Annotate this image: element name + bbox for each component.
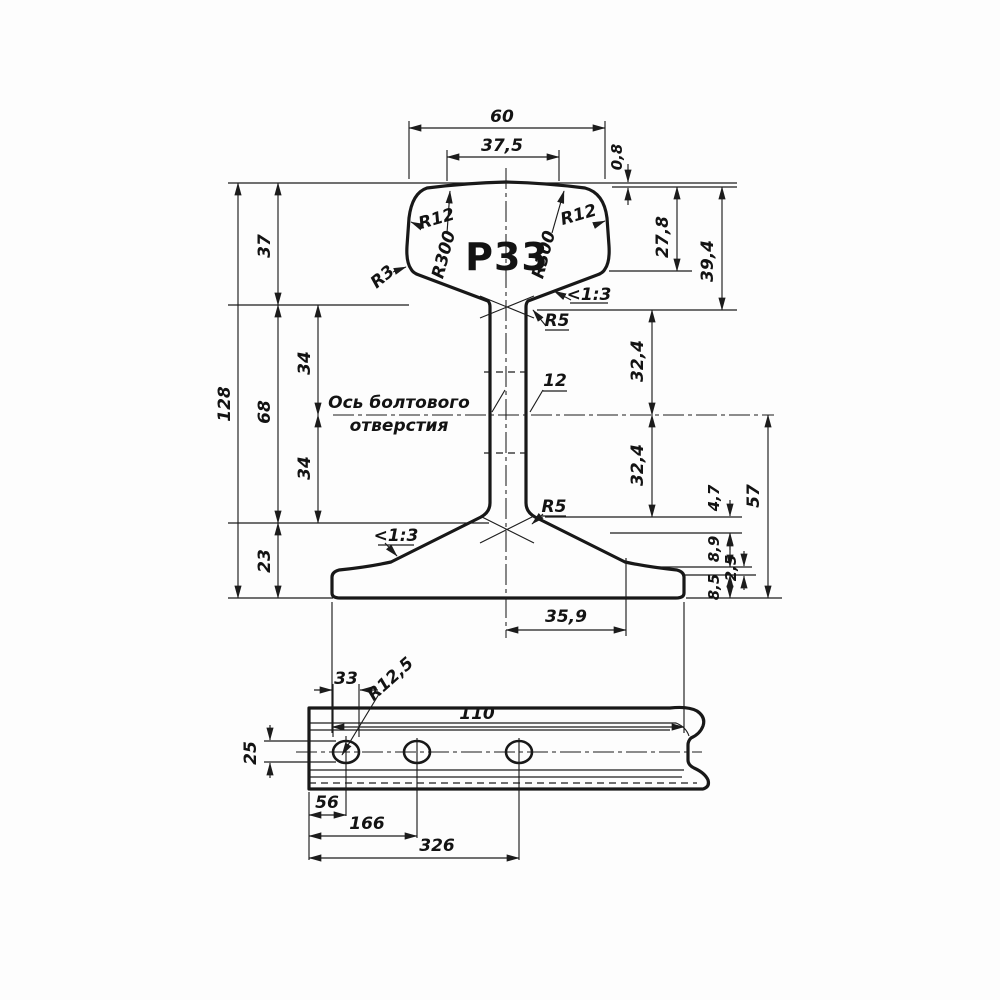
dim-top-width: 60 [490,107,514,127]
dim-head-zone: 37 [255,234,275,258]
dim-third-hole-offset: 326 [419,836,455,856]
dim-crown-drop: 0,8 [608,144,626,171]
dim-overall-height: 128 [215,386,235,422]
radius-r12-left: R12 [416,205,457,234]
radius-r5-upper: R5 [545,311,570,331]
dim-first-hole-offset: 56 [315,793,339,813]
rail-p33-drawing: Р33 60 37,5 0,8 128 37 68 34 34 23 27,8 … [0,0,1000,1000]
dim-head-side-height: 27,8 [653,216,673,258]
radius-r300-left: R300 [428,228,460,280]
dim-axis-to-foot: 34 [295,456,315,480]
radius-r3: R3 [367,261,399,292]
dim-head-total-height: 39,4 [698,240,718,282]
radius-r12-right: R12 [558,201,599,230]
dimension-lines [238,128,768,727]
dim-foot-slope-drop: 8,9 [705,536,723,563]
dim-foot-zone: 23 [255,549,275,573]
rail-drawing-page: Р33 60 37,5 0,8 128 37 68 34 34 23 27,8 … [0,0,1000,1000]
dim-fillet-drop: 4,7 [705,484,723,512]
dim-web-upper: 32,4 [628,340,648,382]
dim-hole-height: 25 [241,741,261,765]
bolt-axis-note-line2: отверстия [350,416,449,436]
extension-lines [228,121,782,733]
dim-axis-to-head: 34 [295,351,315,375]
bolt-axis-note-line1: Ось болтового [328,393,470,413]
radius-hole-end: R12,5 [364,653,418,705]
dim-crown-width: 37,5 [481,136,523,156]
dim-web-zone: 68 [255,400,275,424]
side-view: 33 R12,5 25 56 166 326 [241,653,708,860]
cross-section-view: Р33 60 37,5 0,8 128 37 68 34 34 23 27,8 … [215,107,782,733]
dim-web-thickness: 12 [543,371,567,391]
slope-label-lower: <1:3 [374,526,419,546]
dim-web-lower: 32,4 [628,444,648,486]
dim-hole-length: 33 [334,669,358,689]
dim-foot-edge-thickness: 8,5 [705,574,723,601]
radius-r5-lower: R5 [542,497,567,517]
dim-axis-to-base: 57 [744,484,764,508]
dim-second-hole-offset: 166 [349,814,385,834]
side-view-inner-lines [309,723,697,783]
dim-foot-edge-step: 2,5 [722,555,740,582]
slope-label-upper: <1:3 [567,285,612,305]
dim-foot-half-width: 35,9 [545,607,587,627]
